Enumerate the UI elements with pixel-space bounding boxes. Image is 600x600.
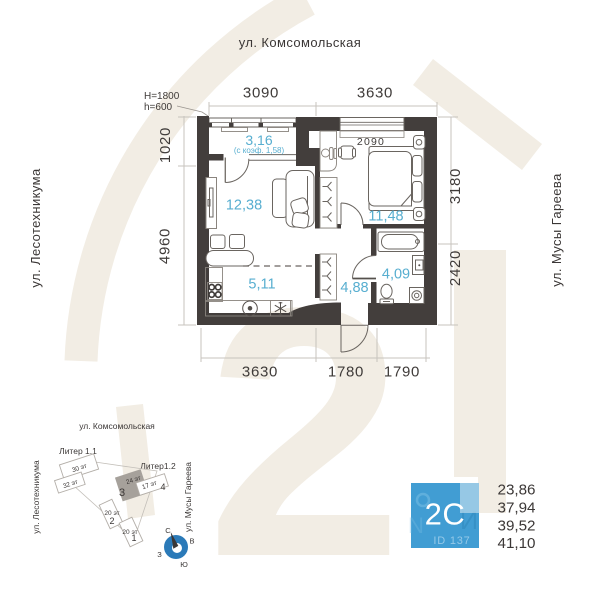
svg-text:12,38: 12,38 bbox=[226, 198, 262, 214]
svg-text:1: 1 bbox=[131, 533, 136, 543]
svg-text:41,10: 41,10 bbox=[498, 535, 536, 552]
svg-text:2: 2 bbox=[109, 516, 114, 526]
svg-text:2С: 2С bbox=[425, 497, 466, 532]
svg-text:(с коэф. 1,58): (с коэф. 1,58) bbox=[234, 146, 285, 155]
svg-text:4960: 4960 bbox=[157, 228, 174, 264]
svg-text:1790: 1790 bbox=[384, 364, 420, 381]
svg-text:2090: 2090 bbox=[357, 136, 385, 148]
svg-text:1780: 1780 bbox=[328, 364, 364, 381]
svg-text:ул. Мусы Гареева: ул. Мусы Гареева bbox=[183, 462, 193, 532]
svg-text:h=600: h=600 bbox=[144, 102, 173, 113]
svg-text:1020: 1020 bbox=[157, 127, 174, 163]
svg-text:H=1800: H=1800 bbox=[144, 91, 180, 102]
svg-text:Ю: Ю bbox=[180, 560, 188, 569]
svg-text:ул. Лесотехникума: ул. Лесотехникума bbox=[31, 460, 41, 534]
svg-text:4,88: 4,88 bbox=[340, 280, 368, 296]
svg-text:4,09: 4,09 bbox=[382, 267, 410, 283]
svg-text:N: N bbox=[408, 513, 424, 538]
svg-text:С: С bbox=[165, 526, 171, 535]
svg-text:З: З bbox=[157, 550, 162, 559]
svg-text:3090: 3090 bbox=[243, 85, 279, 102]
svg-text:37,94: 37,94 bbox=[498, 499, 536, 516]
svg-text:ID 137: ID 137 bbox=[433, 535, 470, 547]
svg-text:3: 3 bbox=[119, 487, 125, 499]
svg-text:11,48: 11,48 bbox=[368, 209, 403, 225]
svg-text:3180: 3180 bbox=[447, 168, 464, 204]
svg-text:39,52: 39,52 bbox=[498, 517, 536, 534]
svg-text:5,11: 5,11 bbox=[248, 277, 275, 293]
svg-text:4: 4 bbox=[160, 482, 165, 492]
svg-text:В: В bbox=[189, 537, 194, 546]
svg-text:ул. Мусы Гареева: ул. Мусы Гареева bbox=[549, 173, 564, 287]
svg-text:3630: 3630 bbox=[242, 364, 278, 381]
svg-text:23,86: 23,86 bbox=[498, 482, 536, 499]
svg-text:ул. Комсомольская: ул. Комсомольская bbox=[79, 421, 155, 431]
svg-text:ул. Лесотехникума: ул. Лесотехникума bbox=[28, 168, 43, 288]
svg-text:ул. Комсомольская: ул. Комсомольская bbox=[239, 35, 361, 50]
svg-text:3630: 3630 bbox=[357, 85, 393, 102]
svg-text:2420: 2420 bbox=[447, 250, 464, 286]
